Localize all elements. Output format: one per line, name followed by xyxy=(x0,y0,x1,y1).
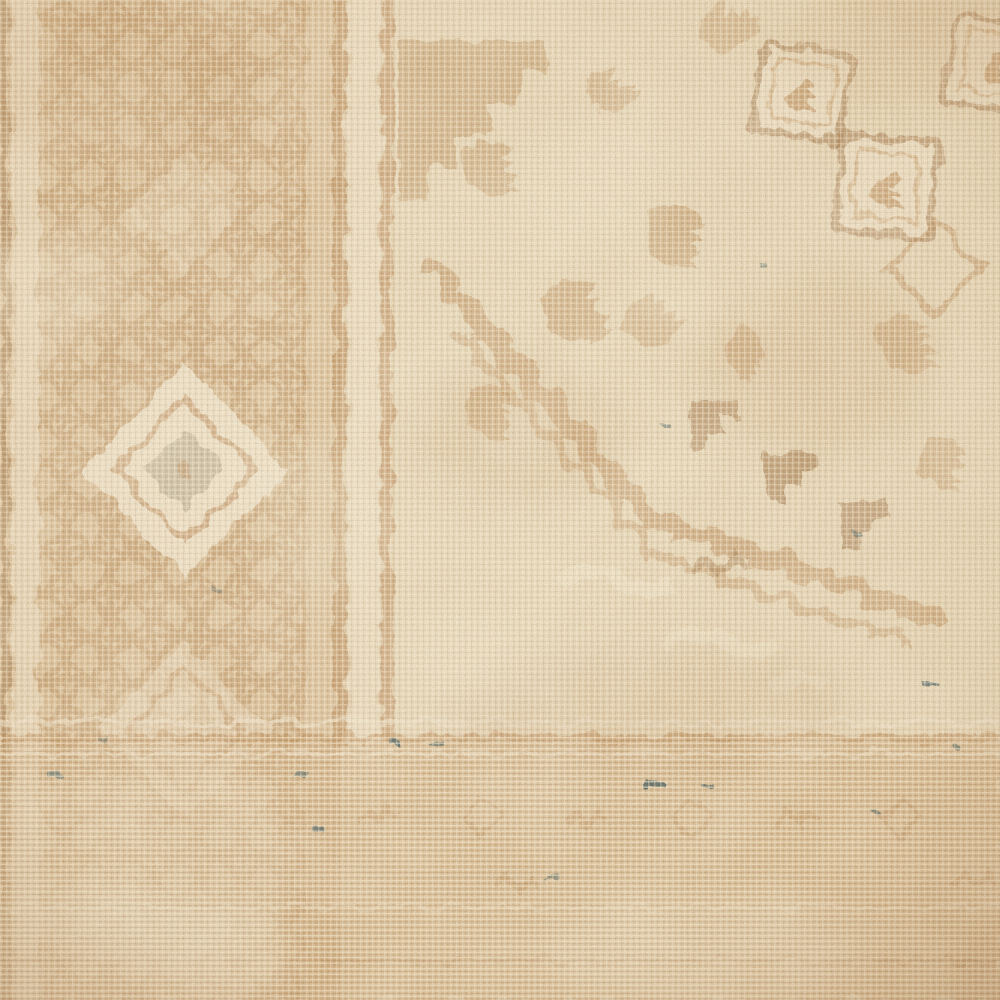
vignette xyxy=(0,0,1000,1000)
rug-illustration xyxy=(0,0,1000,1000)
rug-photo xyxy=(0,0,1000,1000)
